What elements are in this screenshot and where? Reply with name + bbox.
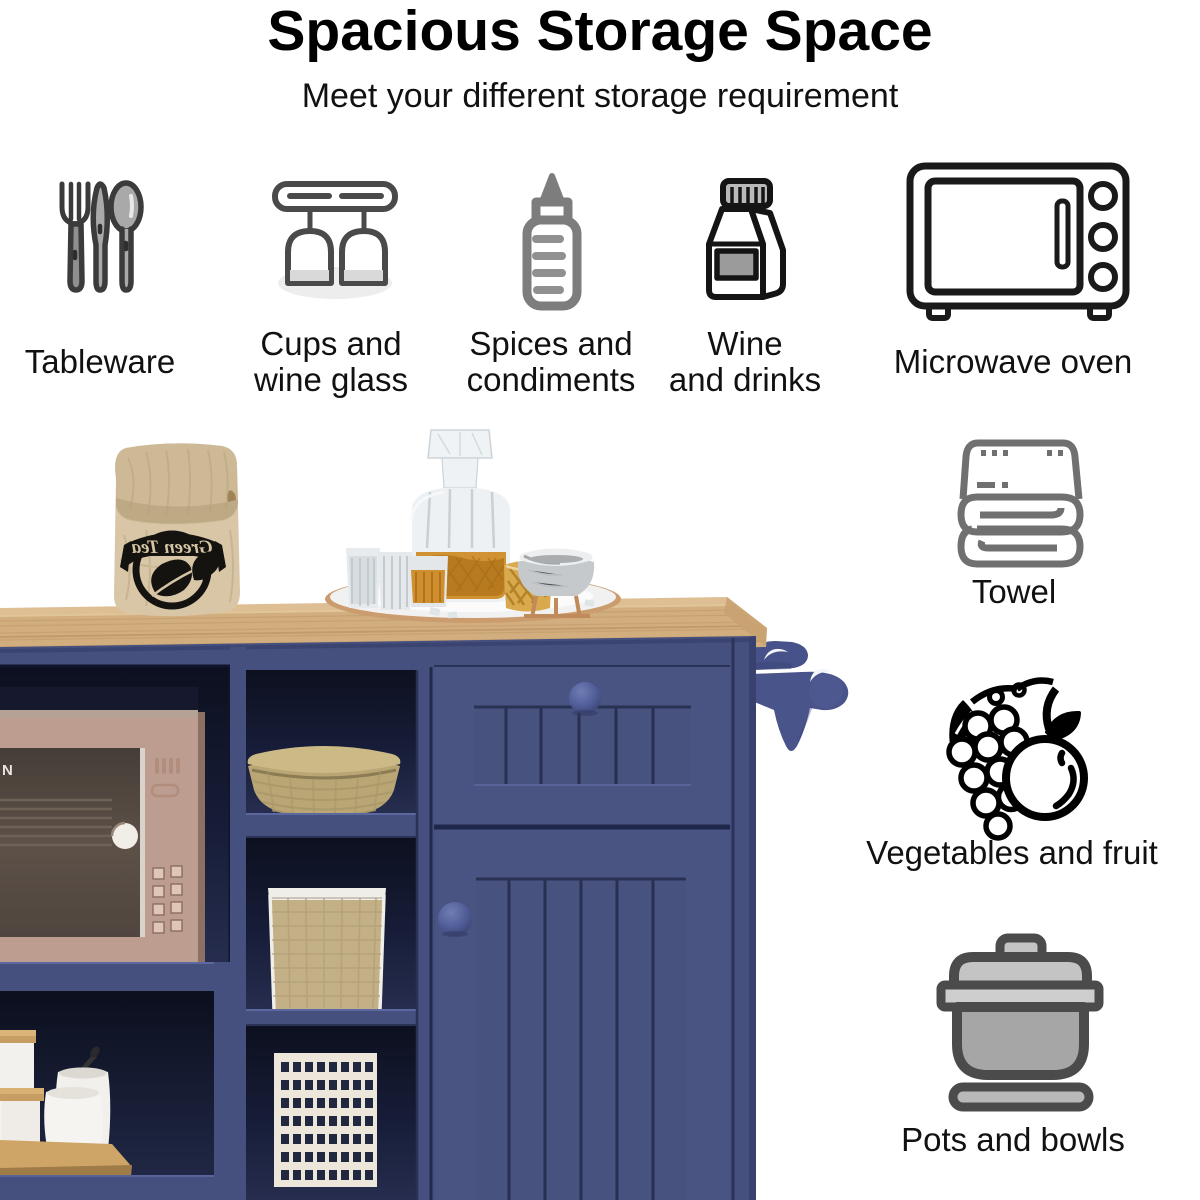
svg-text:N: N (2, 762, 13, 779)
svg-text:Green Tea: Green Tea (131, 537, 213, 558)
